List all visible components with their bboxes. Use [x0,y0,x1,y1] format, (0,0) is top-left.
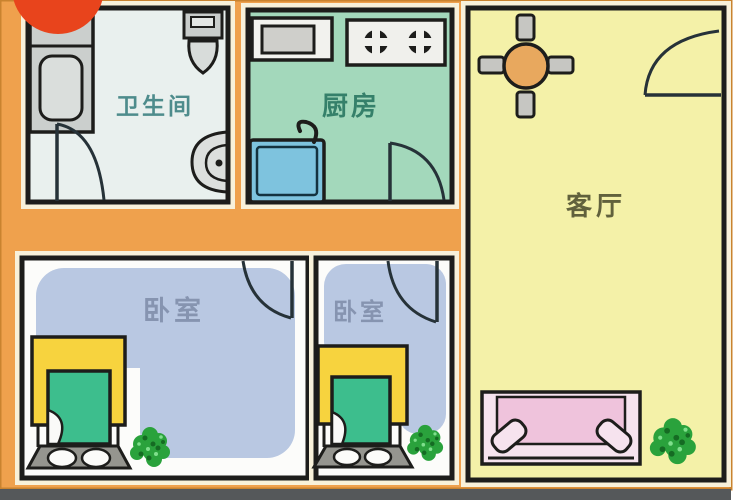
slipper-rug-icon [28,446,130,468]
chair-icon [479,57,504,73]
chair-icon [517,15,534,40]
bedroom-left-label: 卧室 [143,295,205,327]
bathroom-label: 卫生间 [116,94,194,120]
bed-icon [314,346,412,467]
kitchen-label: 厨房 [322,92,380,122]
chair-icon [548,57,573,73]
microwave-icon [252,18,332,60]
floor-plan-canvas: 卫生间 [0,0,750,500]
sofa-icon [482,392,640,464]
stove-two-burner-icon [347,20,445,65]
room-bathroom: 卫生间 [28,8,228,202]
slipper-rug-icon [314,446,412,467]
room-bedroom-middle: 卧室 [314,258,452,478]
bottom-shadow-strip [0,489,731,500]
room-bedroom-left: 卧室 [22,258,308,478]
table-top [504,44,548,88]
chair-icon [517,92,534,117]
room-living: 客厅 [468,8,724,480]
living-room-label: 客厅 [566,191,626,222]
bed-icon [28,337,130,468]
room-kitchen: 厨房 [248,10,452,202]
floor-plan-image: 卫生间 [0,0,750,500]
bedroom-middle-label: 卧室 [333,298,387,326]
